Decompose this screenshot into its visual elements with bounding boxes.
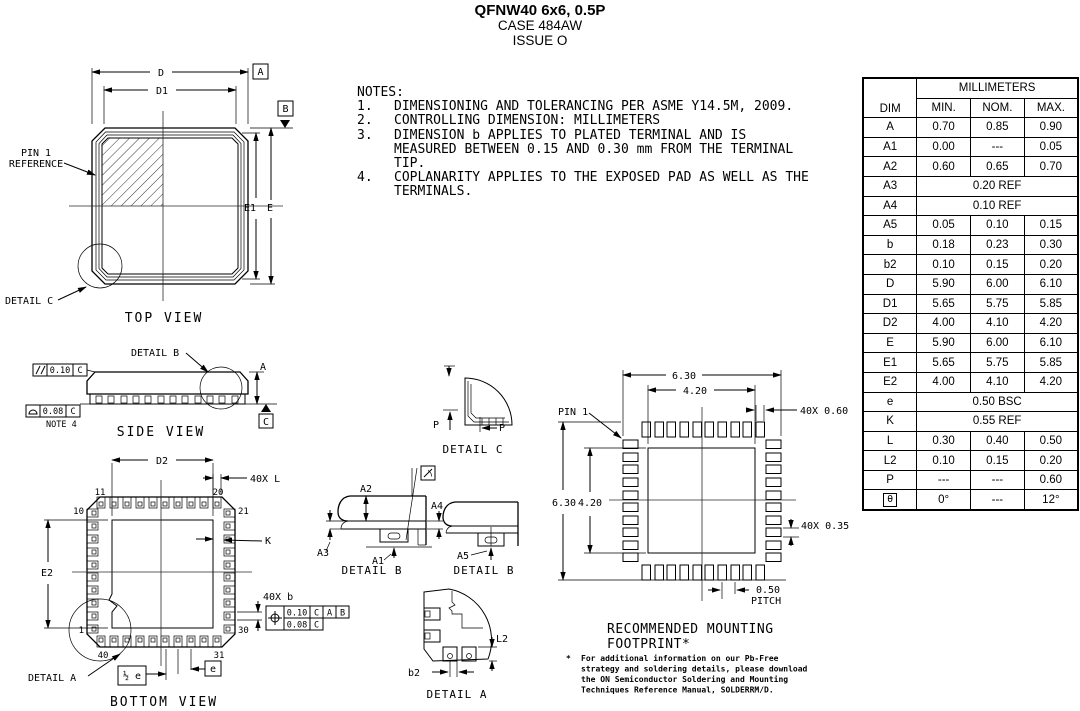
pin-number-20: 20 — [213, 488, 224, 498]
position-fcf: 0.10 C A B 0.08 C — [266, 606, 349, 631]
datum-ref: C — [77, 366, 82, 376]
detail-c-caption: DETAIL C — [443, 443, 504, 456]
dim-label-e2: E2 — [41, 568, 53, 579]
datum-ref: C — [314, 621, 319, 631]
tolerance-value: 0.08 — [287, 621, 307, 631]
fp-pin1-label: PIN 1 — [558, 407, 588, 418]
coplanarity-symbol — [29, 410, 37, 414]
pin1-reference-label: PIN 1 — [21, 148, 51, 159]
dim-label-l2: L2 — [496, 634, 508, 645]
datum-ref: C — [314, 609, 319, 619]
dim-label-a4: A4 — [431, 501, 443, 512]
datum-ref: B — [340, 609, 345, 619]
dim-label-p: P — [433, 420, 439, 431]
pin-number-11: 11 — [95, 488, 106, 498]
detail-b-caption: DETAIL B — [454, 564, 515, 577]
terminal-foot — [380, 529, 408, 542]
footnote-line: For additional information on our Pb-Fre… — [581, 653, 779, 663]
datum-c-label: C — [263, 417, 269, 428]
detail-c-view: P P DETAIL C — [433, 366, 512, 456]
footnote-line: strategy and soldering details, please d… — [581, 664, 808, 674]
datum-ref: A — [327, 609, 332, 619]
engineering-drawing-page: QFNW40 6x6, 0.5P CASE 484AW ISSUE O NOTE… — [0, 0, 1080, 711]
pin-number-21: 21 — [238, 507, 249, 517]
detail-a-view: L2 b2 DETAIL A — [408, 589, 508, 701]
parallelism-fcf: 0.10 C — [33, 364, 87, 376]
bottom-view-caption: BOTTOM VIEW — [110, 695, 218, 710]
fp-pad-width-qty-label: 40X 0.35 — [801, 521, 849, 532]
pin-number-31: 31 — [214, 651, 225, 661]
pin-number-10: 10 — [73, 507, 84, 517]
pin-number-1: 1 — [79, 626, 84, 636]
dim-label-a: A — [260, 362, 266, 373]
side-pins — [96, 396, 238, 403]
top-view: D A D1 E1 E B PIN 1 REFERENCE — [5, 64, 293, 326]
dim-label-d2: D2 — [156, 456, 168, 467]
pin1-reference-label: REFERENCE — [9, 159, 63, 170]
corner-profile — [424, 589, 492, 661]
body-profile — [87, 372, 248, 394]
detail-a-caption: DETAIL A — [427, 688, 488, 701]
tolerance-value: 0.10 — [287, 609, 307, 619]
coplanarity-fcf: 0.08 C — [26, 405, 80, 417]
center-pad — [648, 448, 755, 553]
dim-label-a2: A2 — [360, 484, 372, 495]
footnote-line: the ON Semiconductor Soldering and Mount… — [581, 674, 788, 684]
pitch-label: e — [210, 664, 216, 675]
detail-b-caption: DETAIL B — [342, 564, 403, 577]
fp-pad-length-label: 40X 0.60 — [800, 406, 848, 417]
note4-reference: NOTE 4 — [46, 420, 77, 430]
detail-b-callout: DETAIL B — [131, 348, 179, 359]
detail-c-callout: DETAIL C — [5, 296, 53, 307]
datum-b-triangle — [280, 120, 290, 128]
dim-label-a3: A3 — [317, 548, 329, 559]
pin-number-30: 30 — [238, 626, 249, 636]
qty-b-label: 40X b — [263, 592, 293, 603]
bottom-view: D2 E2 40X L K 40X b — [28, 456, 349, 710]
fp-pitch-value: 0.50 — [756, 585, 780, 596]
datum-b-label: B — [282, 104, 288, 115]
detail-a-callout: DETAIL A — [28, 673, 76, 684]
dim-label-a5: A5 — [457, 551, 469, 562]
tolerance-value: 0.08 — [43, 407, 63, 417]
detail-c-circle — [78, 244, 122, 288]
mounting-footprint: 6.30 4.20 6.30 4.20 PIN 1 — [552, 370, 849, 695]
dim-label-b2: b2 — [408, 668, 420, 679]
fp-pitch-word: PITCH — [751, 596, 781, 607]
datum-a-label: A — [257, 67, 263, 78]
fp-width-label: 6.30 — [672, 371, 696, 382]
half-pitch-label: ½ e — [123, 670, 141, 682]
dim-label-p: P — [499, 423, 505, 434]
footprint-caption: RECOMMENDED MOUNTING — [607, 622, 774, 637]
side-view: 0.10 C 0.08 C — [26, 348, 277, 440]
dim-label-d1: D1 — [156, 86, 168, 97]
top-view-caption: TOP VIEW — [125, 311, 204, 326]
pin1-hatch-region — [102, 138, 163, 206]
datum-c-triangle — [261, 404, 271, 412]
parallelism-symbol — [36, 366, 40, 374]
side-view-caption: SIDE VIEW — [117, 425, 205, 440]
drawing-canvas: D A D1 E1 E B PIN 1 REFERENCE — [0, 0, 1080, 711]
dim-label-e: E — [267, 203, 273, 214]
footnote-star: * — [566, 654, 571, 663]
fp-pad-width-label: 4.20 — [683, 386, 707, 397]
footprint-caption: FOOTPRINT* — [607, 637, 690, 652]
tolerance-value: 0.10 — [50, 366, 70, 376]
detail-b-left-view: A2 A4 A3 A1 DETAIL B — [317, 466, 443, 577]
datum-ref: C — [70, 407, 75, 417]
dim-label-e1: E1 — [244, 203, 256, 214]
pin-number-40: 40 — [98, 651, 109, 661]
detail-b-right-view: A5 DETAIL B — [443, 502, 518, 577]
dim-label-d: D — [158, 68, 164, 79]
qty-l-label: 40X L — [250, 474, 280, 485]
fp-height-label: 6.30 — [552, 498, 576, 509]
fp-pad-height-label: 4.20 — [578, 498, 602, 509]
footnote-line: Techniques Reference Manual, SOLDERRM/D. — [581, 685, 774, 695]
dim-label-k: K — [265, 536, 271, 547]
